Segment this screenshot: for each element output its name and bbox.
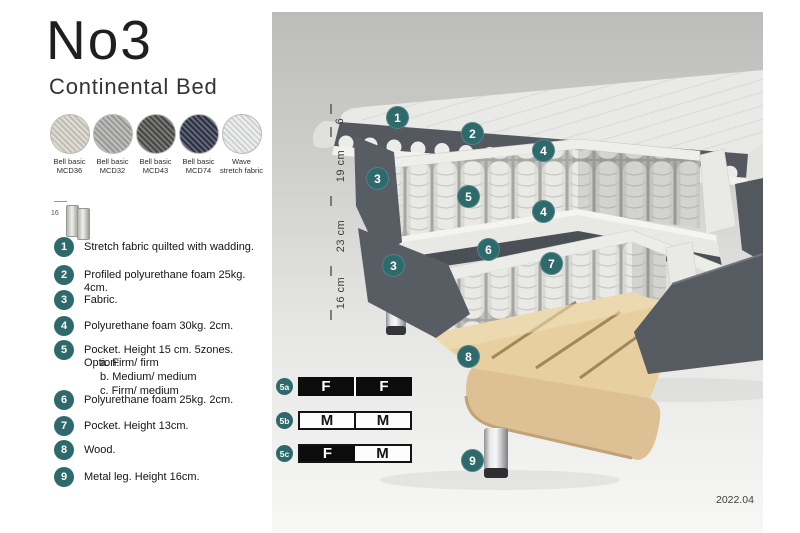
fabric-swatch-icon: [93, 114, 133, 154]
dimension-label: 23 cm: [335, 206, 347, 266]
leg-size-icon: 16: [50, 194, 100, 242]
feature-number-badge: 3: [54, 290, 74, 310]
feature-text: Wood.: [84, 440, 116, 457]
feature-number-badge: 5: [54, 340, 74, 360]
diagram-marker: 4: [532, 139, 555, 162]
feature-option: a. Firm/ firm: [100, 356, 197, 370]
diagram-marker: 3: [382, 254, 405, 277]
diagram-marker: 7: [540, 252, 563, 275]
feature-item: 3 Fabric.: [54, 290, 266, 310]
firmness-option-badge: 5a: [276, 378, 293, 395]
diagram-marker: 6: [477, 238, 500, 261]
diagram-marker: 2: [461, 122, 484, 145]
feature-number-badge: 7: [54, 416, 74, 436]
fabric-swatch-icon: [136, 114, 176, 154]
feature-number-badge: 6: [54, 390, 74, 410]
dimension-label: 16 cm: [335, 263, 347, 323]
firmness-option-badge: 5c: [276, 445, 293, 462]
feature-number-badge: 9: [54, 467, 74, 487]
page-subtitle: Continental Bed: [49, 74, 218, 100]
feature-item: 9 Metal leg. Height 16cm.: [54, 467, 266, 487]
diagram-marker: 9: [461, 449, 484, 472]
fabric-swatch-icon: [222, 114, 262, 154]
fabric-swatches: Bell basic MCD36 Bell basic MCD32 Bell b…: [48, 114, 268, 175]
feature-item: 8 Wood.: [54, 440, 266, 460]
firmness-table-5a: F F: [298, 377, 412, 396]
feature-number-badge: 1: [54, 237, 74, 257]
firmness-table-5b: M M: [298, 411, 412, 430]
firmness-option-badge: 5b: [276, 412, 293, 429]
fabric-swatch-icon: [50, 114, 90, 154]
feature-item: 6 Polyurethane foam 25kg. 2cm.: [54, 390, 266, 410]
feature-number-badge: 4: [54, 316, 74, 336]
leg-height-tick: [54, 201, 67, 202]
firmness-cell: F: [300, 446, 355, 461]
feature-item: 4 Polyurethane foam 30kg. 2cm.: [54, 316, 266, 336]
firmness-cell: M: [355, 446, 410, 461]
feature-option: b. Medium/ medium: [100, 370, 197, 384]
leg-cylinder-icon: [77, 208, 90, 240]
diagram-marker: 5: [457, 185, 480, 208]
feature-text: Stretch fabric quilted with wadding.: [84, 237, 254, 254]
feature-text: Polyurethane foam 25kg. 2cm.: [84, 390, 233, 407]
page-title: No3: [46, 10, 153, 70]
firmness-table-5c: F M: [298, 444, 412, 463]
product-sheet: No3 Continental Bed Bell basic MCD36 Bel…: [0, 0, 800, 533]
leg-height-label: 16: [51, 210, 59, 217]
feature-text: Pocket. Height 13cm.: [84, 416, 189, 433]
feature-text: Metal leg. Height 16cm.: [84, 467, 200, 484]
diagram-marker: 1: [386, 106, 409, 129]
fabric-swatch: Bell basic MCD36: [48, 114, 91, 175]
fabric-swatch: Bell basic MCD43: [134, 114, 177, 175]
feature-text: Polyurethane foam 30kg. 2cm.: [84, 316, 233, 333]
feature-item: 7 Pocket. Height 13cm.: [54, 416, 266, 436]
diagram-marker: 8: [457, 345, 480, 368]
firmness-cell: M: [300, 413, 354, 428]
feature-number-badge: 2: [54, 265, 74, 285]
fabric-swatch-icon: [179, 114, 219, 154]
firmness-cell: F: [354, 377, 412, 396]
feature-text: Fabric.: [84, 290, 118, 307]
firmness-cell: M: [354, 413, 410, 428]
diagram-marker: 4: [532, 200, 555, 223]
dimension-label: 19 cm: [335, 136, 347, 196]
feature-item: 1 Stretch fabric quilted with wadding.: [54, 237, 266, 257]
firmness-cell: F: [298, 377, 354, 396]
fabric-swatch: Bell basic MCD74: [177, 114, 220, 175]
feature-number-badge: 8: [54, 440, 74, 460]
fabric-swatch: Wave stretch fabric: [220, 114, 263, 175]
version-label: 2022.04: [716, 494, 754, 506]
diagram-marker: 3: [366, 167, 389, 190]
fabric-swatch: Bell basic MCD32: [91, 114, 134, 175]
